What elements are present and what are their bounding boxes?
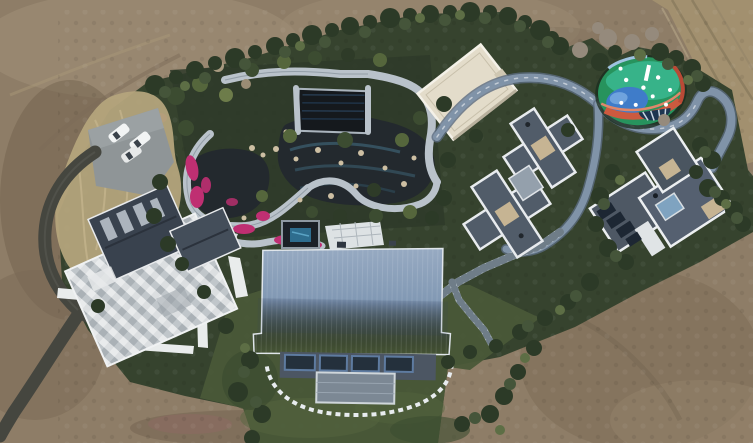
spa-pool (282, 221, 319, 248)
glass-terrace (316, 372, 395, 403)
dark-garden-pavilion (297, 89, 368, 133)
aerial-photo (0, 0, 753, 443)
